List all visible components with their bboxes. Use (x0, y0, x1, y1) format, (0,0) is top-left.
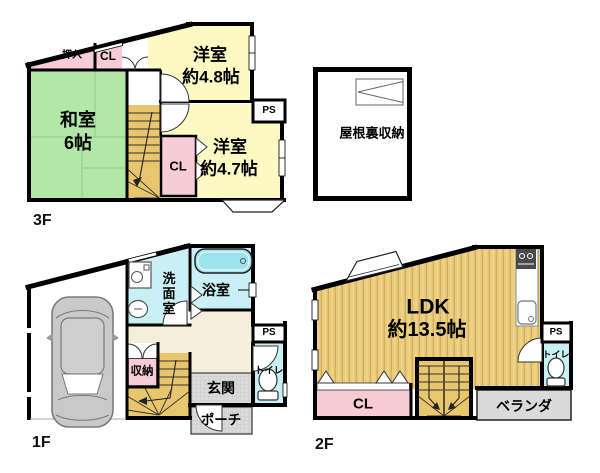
closet-cl-2f (317, 390, 411, 416)
ladder-icon (356, 79, 403, 105)
bay-window-3f (222, 200, 285, 212)
veranda (477, 390, 571, 420)
floor-1f-plan (26, 244, 287, 434)
ps-box-3f (253, 100, 285, 122)
stairs-icon (129, 105, 160, 198)
kitchen-sink-icon (518, 301, 536, 324)
floor-label-2f: 2F (315, 436, 334, 454)
bathtub-icon (195, 249, 252, 273)
toilet-icon-2f (547, 358, 565, 386)
entrance (192, 373, 252, 403)
car-icon (46, 297, 119, 427)
attic-storage-plan (316, 70, 410, 199)
floor-2f-plan (312, 245, 573, 420)
washing-machine-icon (129, 262, 151, 288)
floor-3f-plan (27, 22, 286, 212)
floor-label-3f: 3F (33, 212, 52, 230)
floor-label-1f: 1F (32, 434, 51, 452)
storage-closet (128, 358, 157, 386)
ps-box-2f (542, 323, 571, 342)
ps-box-1f (253, 325, 285, 342)
stove-icon (516, 249, 536, 269)
sink-icon (129, 301, 148, 318)
closet-cl-mid (161, 136, 196, 196)
washitsu-room (31, 70, 126, 199)
toilet-icon-1f (258, 369, 278, 400)
stairs-icon-2f (417, 359, 471, 418)
floorplan-drawing (0, 0, 600, 473)
kitchen-counter (516, 249, 538, 326)
floorplan-canvas: 和室 6帖 洋室 約4.8帖 洋室 約4.7帖 押入 CL CL PS 3F 屋… (0, 0, 600, 473)
